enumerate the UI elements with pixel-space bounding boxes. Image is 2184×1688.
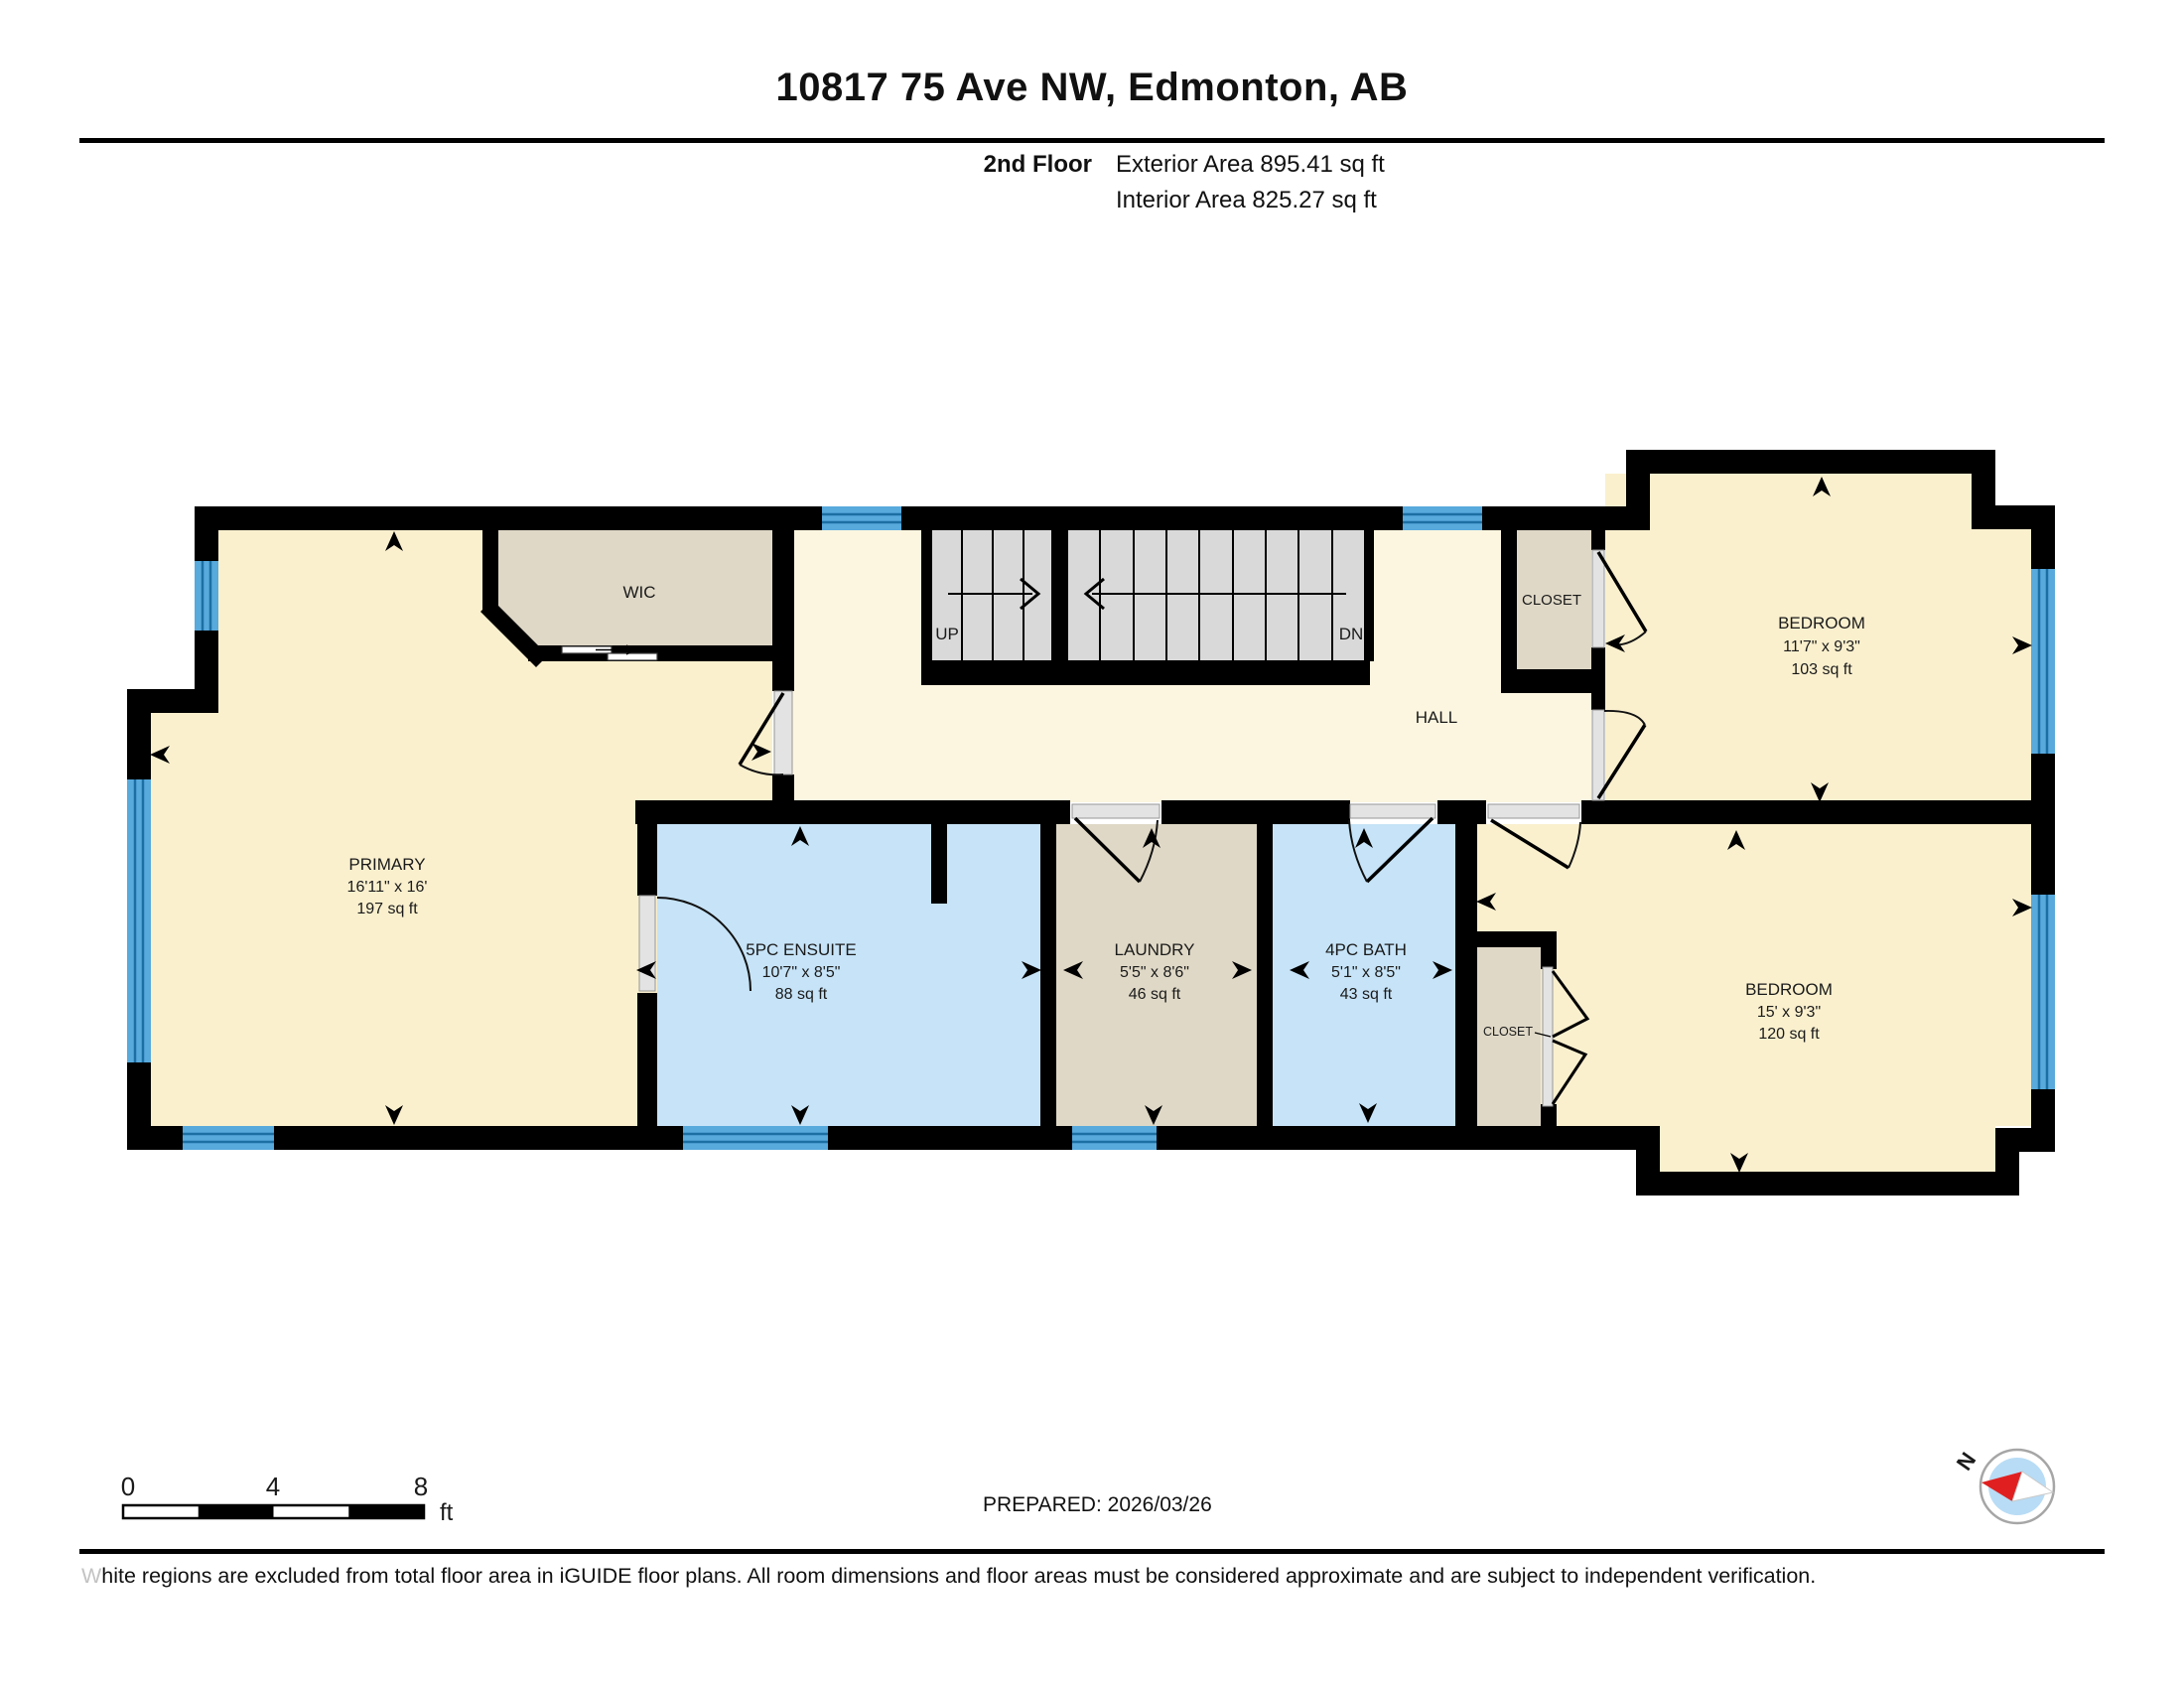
laundry-area: 46 sq ft xyxy=(1129,986,1181,1003)
wall-wic-west xyxy=(482,530,498,614)
wall-stairs-east xyxy=(1365,526,1374,661)
stairs-down-label: DN xyxy=(1339,625,1364,643)
wall-stairs-west xyxy=(921,526,931,661)
wall-stairs-divider xyxy=(1052,526,1067,661)
bath-dims: 5'1" x 8'5" xyxy=(1331,964,1401,981)
scale-tick-0: 0 xyxy=(121,1472,135,1501)
wall-hall-south-c xyxy=(1437,800,1486,824)
disclaimer-text: White regions are excluded from total fl… xyxy=(81,1564,1816,1589)
ensuite-floor xyxy=(657,824,1040,1126)
disclaimer-body: hite regions are excluded from total flo… xyxy=(101,1564,1816,1588)
wall-stairs-south xyxy=(921,661,1370,685)
wall-top-bedroom xyxy=(1626,450,1995,474)
bath-name: 4PC BATH xyxy=(1325,940,1407,959)
ensuite-dims: 10'7" x 8'5" xyxy=(762,964,841,981)
scale-tick-4: 4 xyxy=(266,1472,280,1501)
bedroom-upper-name: BEDROOM xyxy=(1778,614,1865,633)
primary-dims: 16'11" x 16' xyxy=(347,879,428,896)
stairs-up-label: UP xyxy=(935,625,959,643)
wall-closet-upper-south xyxy=(1501,669,1605,693)
window-primary-west-lower xyxy=(127,779,151,1062)
scale-tick-8: 8 xyxy=(414,1472,428,1501)
compass-north-label: N xyxy=(1952,1448,1981,1475)
wall-hall-south-b xyxy=(1161,800,1350,824)
prepared-date: PREPARED: 2026/03/26 xyxy=(983,1493,1212,1517)
bedroom-lower-name: BEDROOM xyxy=(1745,980,1833,999)
primary-area: 197 sq ft xyxy=(356,901,418,917)
scale-bar-seg-dark2 xyxy=(348,1505,424,1518)
window-ensuite-south xyxy=(683,1126,828,1150)
wall-closet-col-a xyxy=(1591,530,1605,550)
wic-name: WIC xyxy=(622,583,655,602)
bedroom-lower-floor-south xyxy=(1656,1126,1995,1174)
wall-ensuite-laundry xyxy=(1040,824,1056,1126)
wall-bottom-bedroom xyxy=(1636,1172,2019,1196)
wall-closet-lower-block2 xyxy=(1541,1104,1557,1126)
window-bedroom-upper-east xyxy=(2031,569,2055,754)
window-bedroom-lower-east xyxy=(2031,895,2055,1089)
wall-hall-primary-lower xyxy=(772,774,794,804)
bedroom-lower-floor xyxy=(1477,824,2031,1126)
wall-bottom-main xyxy=(127,1126,1660,1150)
wall-laundry-bath xyxy=(1257,824,1273,1126)
primary-name: PRIMARY xyxy=(348,855,425,874)
primary-floor-extension xyxy=(151,701,220,1126)
window-hall-north-1 xyxy=(822,506,901,530)
closet-lower-name: CLOSET xyxy=(1483,1025,1533,1039)
bedroom-upper-area: 103 sq ft xyxy=(1791,661,1852,678)
wall-hall-south-a xyxy=(635,800,1070,824)
wall-closet-lower-block1 xyxy=(1541,947,1557,969)
wall-closet-upper-west xyxy=(1501,530,1517,693)
laundry-name: LAUNDRY xyxy=(1115,940,1195,959)
bedroom-upper-dims: 11'7" x 9'3" xyxy=(1783,638,1860,655)
window-primary-south xyxy=(183,1126,274,1150)
floorplan-page: 10817 75 Ave NW, Edmonton, AB 2nd Floor … xyxy=(0,0,2184,1688)
ensuite-name: 5PC ENSUITE xyxy=(746,940,856,959)
bedroom-lower-dims: 15' x 9'3" xyxy=(1757,1004,1821,1021)
wall-ensuite-west-upper xyxy=(637,800,657,896)
wall-ensuite-stub xyxy=(931,824,947,904)
compass: N xyxy=(1952,1448,2054,1523)
wall-ensuite-west-lower xyxy=(637,993,657,1126)
footer-divider xyxy=(79,1549,2105,1554)
ensuite-area: 88 sq ft xyxy=(775,986,828,1003)
scale-bar-seg-dark1 xyxy=(199,1505,274,1518)
disclaimer-lead-letter: W xyxy=(81,1564,101,1588)
floor-plan-drawing: PRIMARY 16'11" x 16' 197 sq ft WIC HALL … xyxy=(0,0,2184,1688)
scale-bar: 0 4 8 ft xyxy=(121,1472,454,1526)
staircase xyxy=(931,526,1365,661)
window-hall-north-2 xyxy=(1403,506,1482,530)
hall-name: HALL xyxy=(1416,708,1458,727)
laundry-dims: 5'5" x 8'6" xyxy=(1120,964,1189,981)
wall-closet-col-b xyxy=(1591,647,1605,710)
scale-unit: ft xyxy=(440,1499,454,1526)
window-laundry-south xyxy=(1072,1126,1157,1150)
bedroom-lower-area: 120 sq ft xyxy=(1758,1026,1820,1043)
wall-hall-primary-upper xyxy=(772,530,794,691)
wall-bedroom-divider xyxy=(1581,800,2031,824)
wall-closet-lower-north xyxy=(1477,931,1557,947)
window-primary-west-upper xyxy=(195,561,218,631)
bedroom-upper-floor-east xyxy=(1972,529,2031,800)
closet-upper-name: CLOSET xyxy=(1522,592,1581,609)
wall-connector-ne xyxy=(1626,450,1650,530)
bedroom-upper-floor xyxy=(1605,474,1972,800)
wall-bath-east xyxy=(1455,824,1477,1126)
bath-area: 43 sq ft xyxy=(1340,986,1393,1003)
